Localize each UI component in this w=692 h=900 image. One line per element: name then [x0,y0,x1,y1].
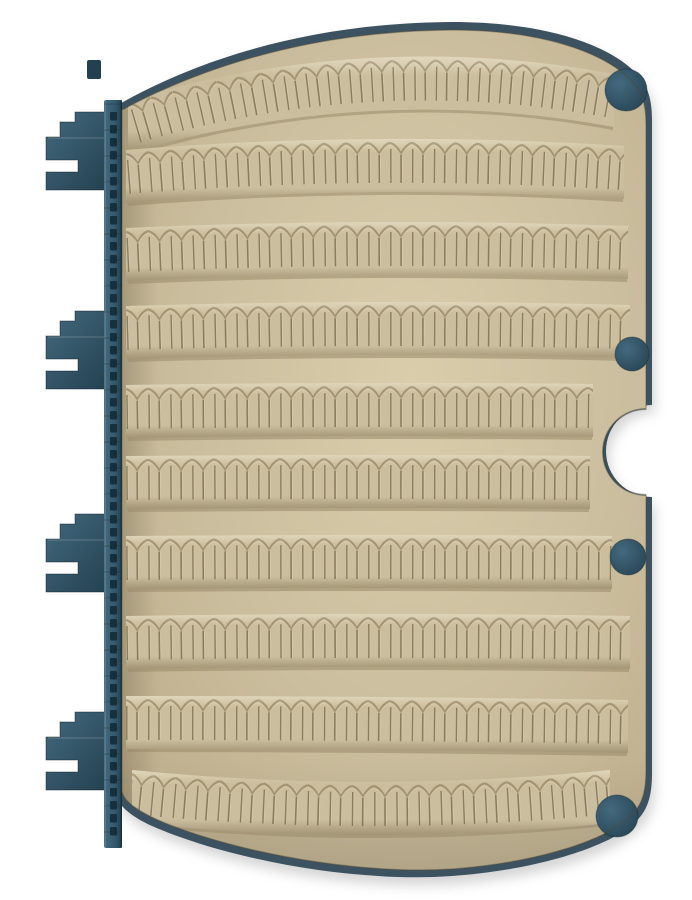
hinge-slot [110,814,117,823]
hinge-slot [110,528,117,537]
hinge-slot [110,333,117,342]
hinge-slot [110,801,117,810]
hinge-slot [110,411,117,420]
hinge-slot [110,229,117,238]
hinge-slot [110,450,117,459]
spine-top-tab [87,60,101,79]
hinge-slot [110,242,117,251]
hinge-spine [104,100,122,848]
hinge-slot [110,710,117,719]
hinge-slot [110,164,117,173]
hinge-slot [110,463,117,472]
hinge-slot [110,385,117,394]
hinge-slot [110,177,117,186]
hinge-slot [110,697,117,706]
hinge-slot [110,372,117,381]
hinge-spine-strip [104,100,122,848]
fly-box-scene [0,0,692,900]
hinge-slot [110,827,117,836]
hinge-slot [110,619,117,628]
hinge-slot [110,723,117,732]
hinge-slot [110,424,117,433]
fly-slit-row [122,218,654,285]
hinge-slot [110,645,117,654]
hinge-slot [110,736,117,745]
hinge-slot [110,541,117,550]
hinge-slot [110,775,117,784]
hinge-slot [110,398,117,407]
hinge-clip [46,112,112,190]
hinge-slot [110,125,117,134]
hinge-slot [110,762,117,771]
hinge-slot [110,151,117,160]
hinge-slot [110,749,117,758]
fly-slit-row [122,298,654,363]
hinge-slot [110,671,117,680]
hinge-slot [110,203,117,212]
hinge-slot [110,138,117,147]
hinge-slot [110,788,117,797]
hinge-slot [110,554,117,563]
fly-slit-row [122,692,654,757]
hinge-slot [110,580,117,589]
hinge-clip [46,514,112,592]
fly-slit-row [122,379,632,442]
hinge-slot [110,437,117,446]
product-photo [0,0,692,900]
hinge-clip [46,311,112,389]
hinge-slot [110,320,117,329]
fly-slit-row [122,531,654,593]
fly-slit-row [122,610,654,673]
hinge-slot [110,658,117,667]
fly-slit-row [122,451,632,513]
pivot-peg [596,795,638,837]
hinge-slot [110,190,117,199]
hinge-slot [110,359,117,368]
hinge-slot [110,216,117,225]
pivot-peg [615,337,649,371]
pivot-peg [610,539,646,575]
hinge-slot [110,502,117,511]
hinge-slot [110,632,117,641]
hinge-slot [110,476,117,485]
hinge-slot [110,294,117,303]
hinge-slot [110,255,117,264]
hinge-slot [110,268,117,277]
hinge-slot [110,593,117,602]
hinge-slot [110,346,117,355]
hinge-slot [110,684,117,693]
hinge-slot [110,489,117,498]
hinge-slot [110,567,117,576]
hinge-slot [110,515,117,524]
hinge-slot [110,112,117,121]
hinge-slot [110,606,117,615]
hinge-clips [46,112,112,790]
hinge-slot [110,307,117,316]
hinge-slot [110,281,117,290]
hinge-clip [46,712,112,790]
